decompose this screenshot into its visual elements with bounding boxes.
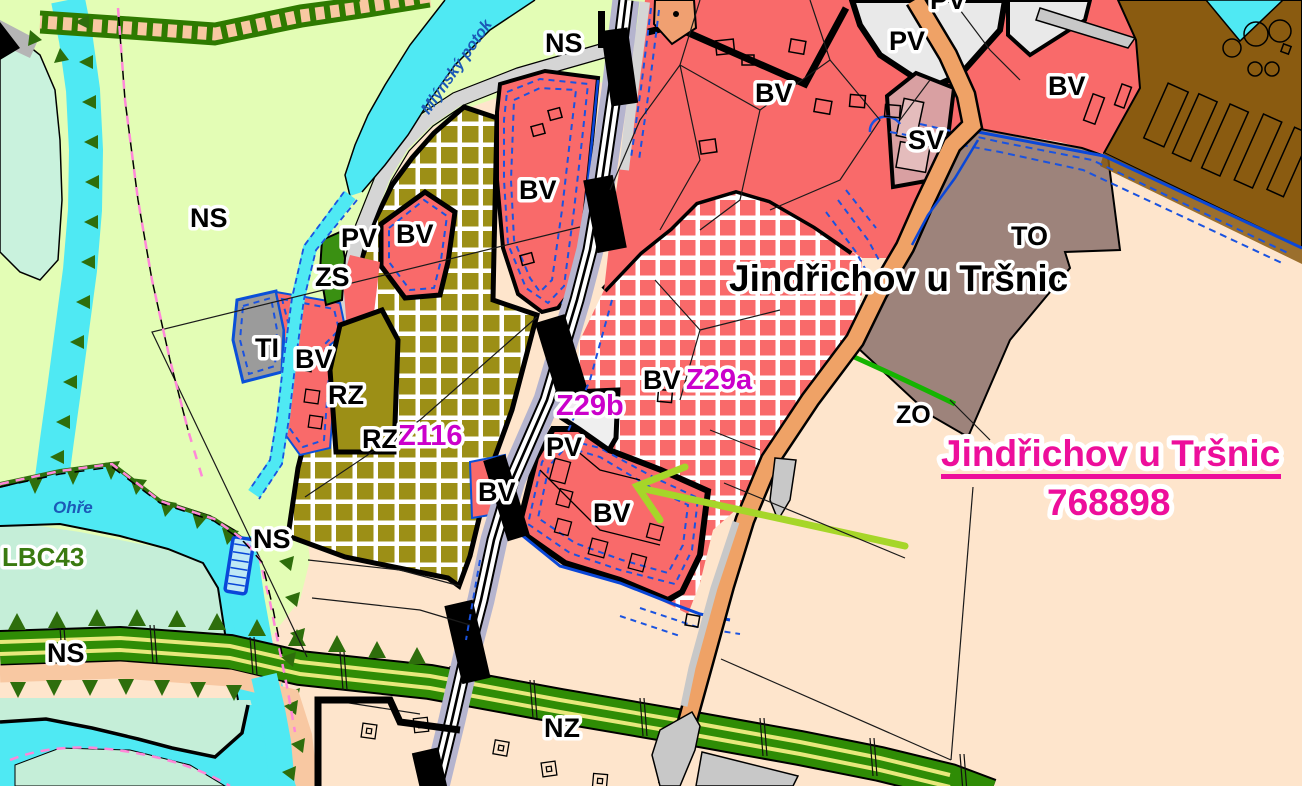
svg-text:BV: BV (519, 175, 557, 205)
svg-text:PV: PV (341, 223, 377, 253)
svg-text:RZ: RZ (328, 380, 364, 410)
svg-text:NS: NS (47, 638, 85, 668)
svg-text:BV: BV (1048, 71, 1086, 101)
svg-text:BV: BV (295, 344, 333, 374)
svg-text:ZO: ZO (896, 401, 931, 429)
svg-text:NZ: NZ (544, 713, 580, 743)
svg-text:NS: NS (253, 524, 291, 554)
svg-text:NS: NS (190, 203, 228, 233)
svg-text:NS: NS (545, 28, 583, 58)
svg-text:PV: PV (930, 0, 966, 15)
svg-text:LBC43: LBC43 (2, 542, 84, 572)
svg-text:ZS: ZS (315, 262, 350, 292)
svg-text:Z29b: Z29b (556, 390, 624, 422)
svg-text:Jindřichov u Tršnic: Jindřichov u Tršnic (729, 258, 1068, 299)
svg-text:Jindřichov u Tršnic: Jindřichov u Tršnic (941, 433, 1280, 474)
svg-text:Z116: Z116 (398, 420, 463, 452)
svg-text:BV: BV (643, 365, 681, 395)
svg-text:BV: BV (396, 219, 434, 249)
svg-text:RZ: RZ (362, 424, 398, 454)
svg-text:TI: TI (255, 333, 279, 363)
svg-text:BV: BV (755, 78, 793, 108)
svg-text:768898: 768898 (1047, 482, 1170, 523)
svg-text:PV: PV (889, 26, 925, 56)
svg-text:BV: BV (593, 498, 631, 528)
svg-text:Z29a: Z29a (686, 364, 753, 396)
svg-text:BV: BV (478, 477, 516, 507)
svg-text:TO: TO (1011, 221, 1048, 251)
svg-text:Ohře: Ohře (53, 498, 93, 517)
svg-text:PV: PV (546, 432, 582, 462)
svg-text:SV: SV (908, 125, 944, 155)
